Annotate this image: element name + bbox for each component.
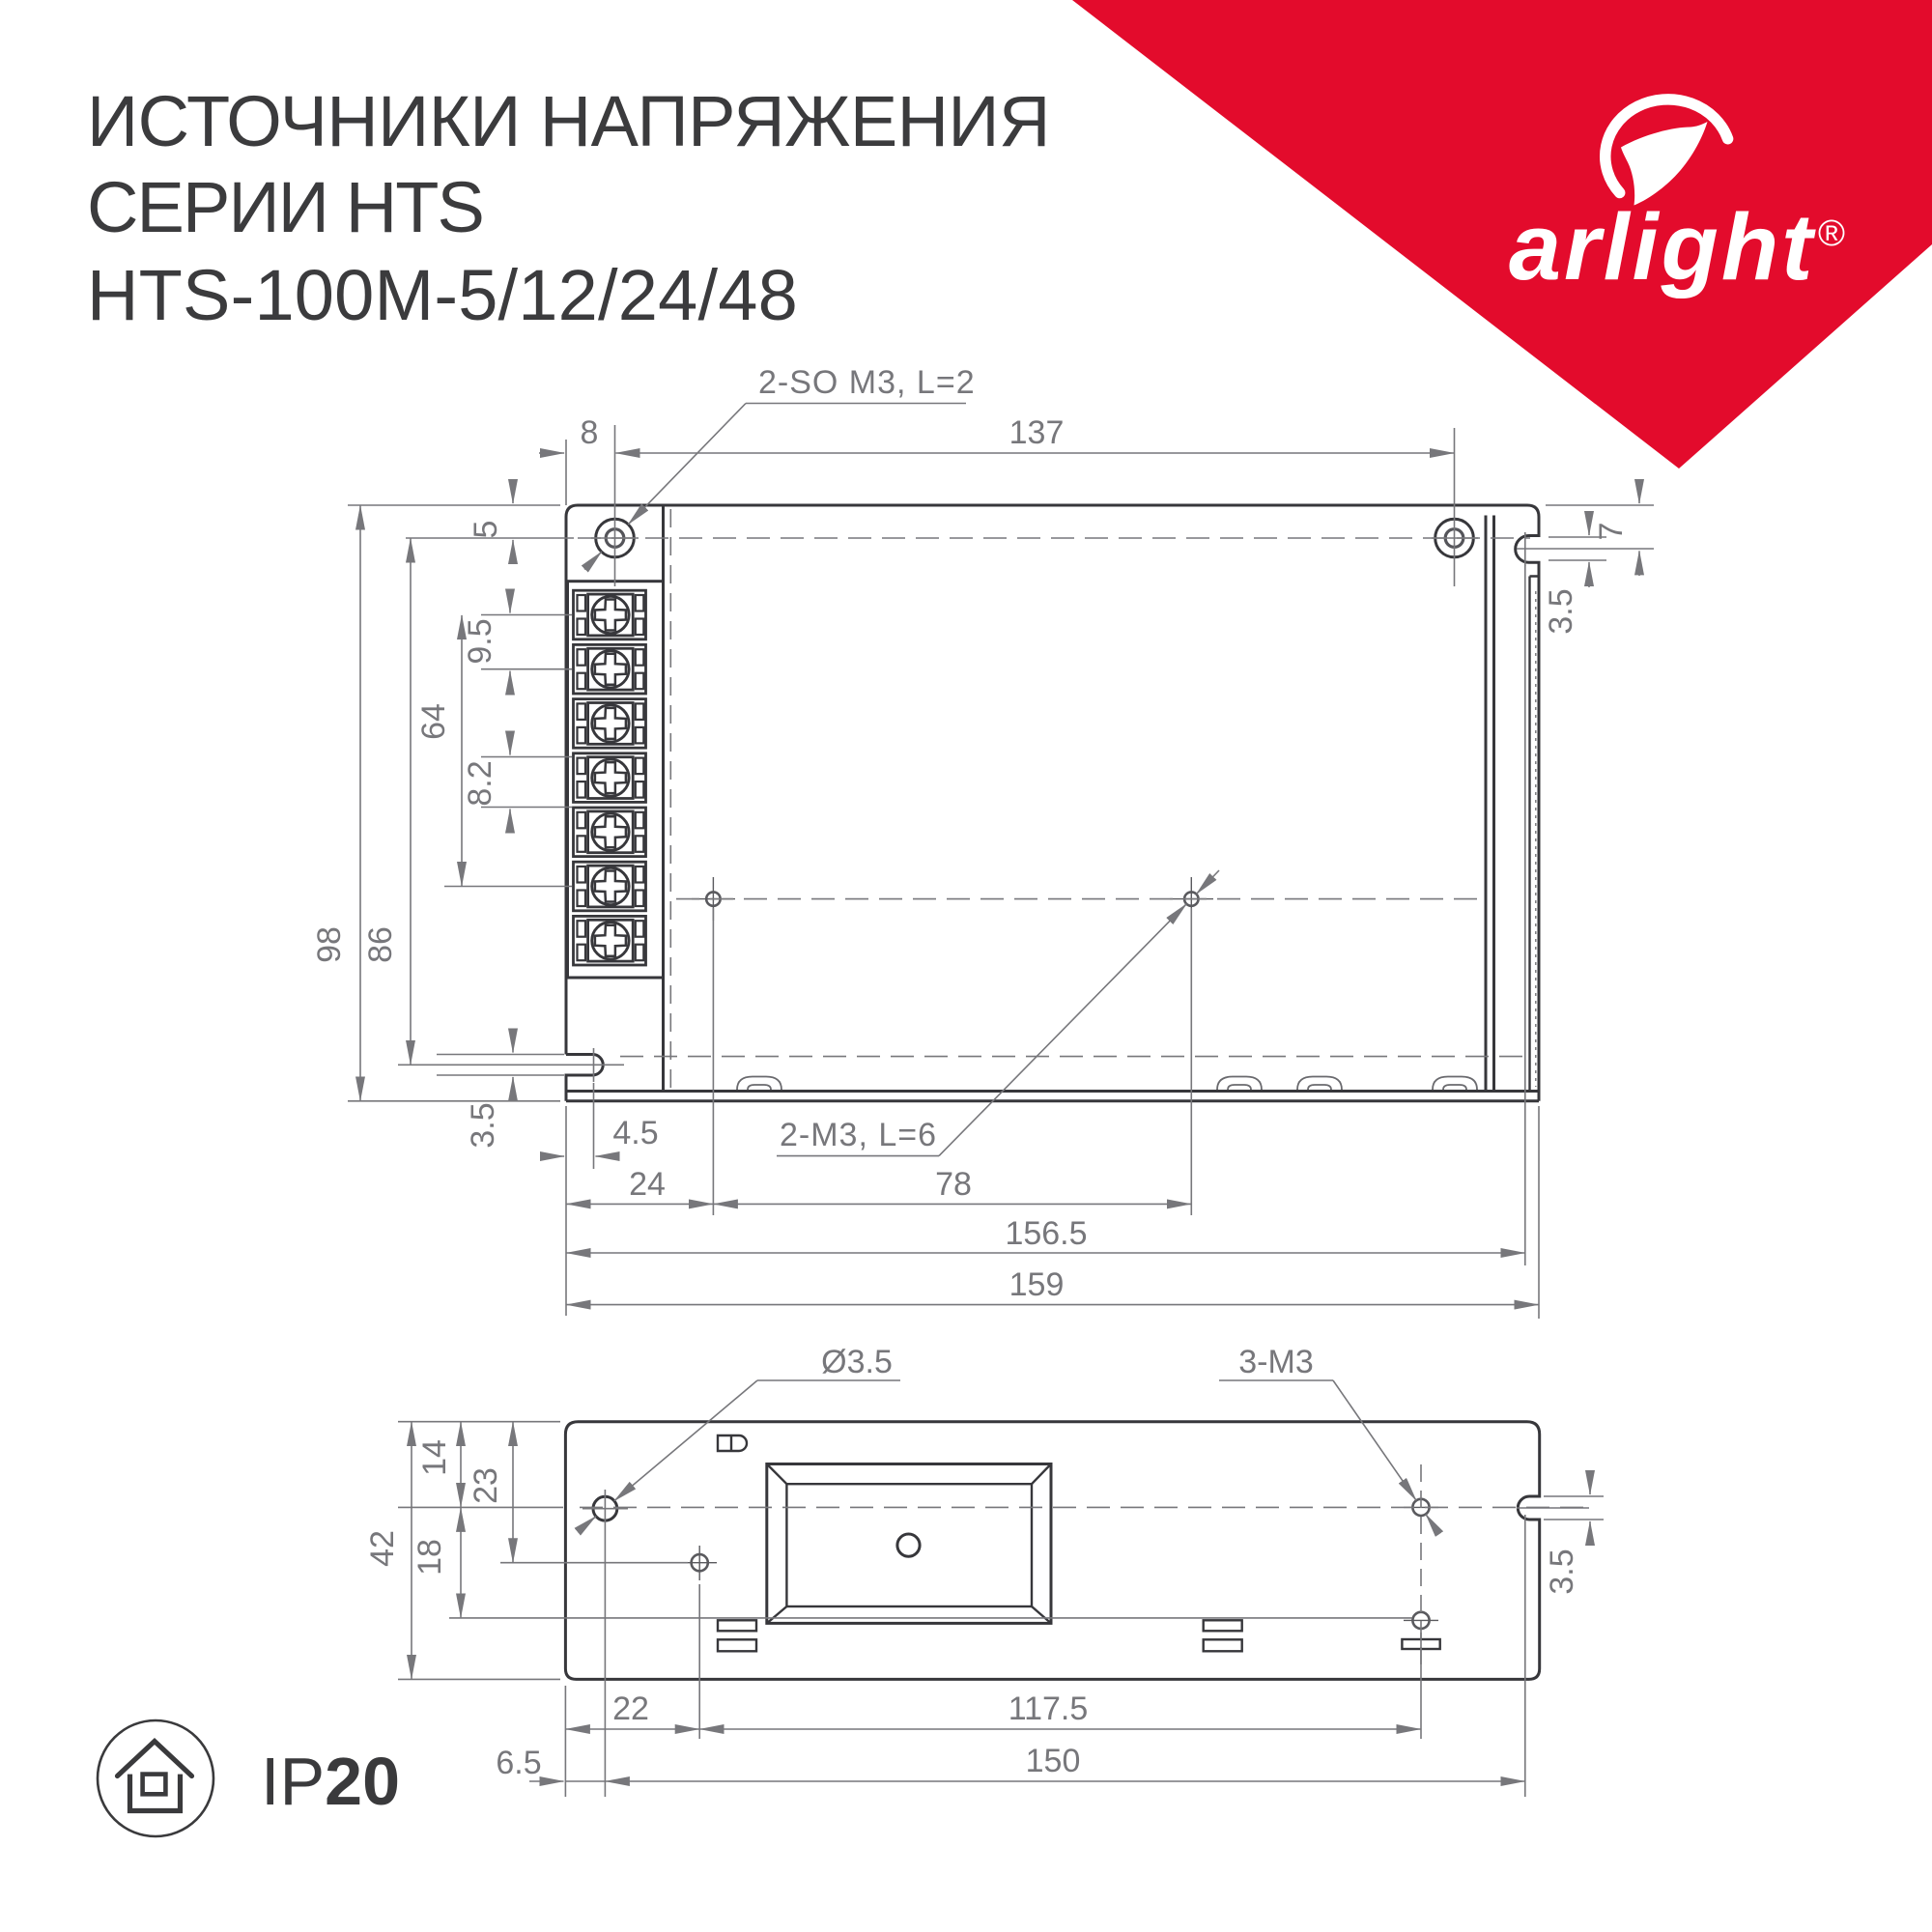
svg-text:64: 64 (415, 703, 452, 740)
svg-text:Ø3.5: Ø3.5 (821, 1344, 893, 1380)
svg-text:3-M3: 3-M3 (1238, 1344, 1313, 1380)
svg-text:4.5: 4.5 (612, 1115, 658, 1151)
svg-text:22: 22 (612, 1690, 649, 1727)
svg-text:3.5: 3.5 (1544, 1548, 1580, 1594)
svg-text:®: ® (1818, 213, 1845, 254)
svg-text:2-SO M3, L=2: 2-SO M3, L=2 (758, 364, 976, 401)
svg-text:3.5: 3.5 (465, 1102, 501, 1148)
svg-text:23: 23 (468, 1467, 504, 1504)
svg-text:5: 5 (468, 521, 504, 539)
svg-text:159: 159 (1009, 1266, 1065, 1303)
svg-text:98: 98 (311, 926, 348, 963)
svg-text:18: 18 (412, 1539, 448, 1576)
svg-text:7: 7 (1593, 523, 1630, 541)
svg-text:СЕРИИ HTS: СЕРИИ HTS (87, 167, 483, 247)
svg-text:arlight: arlight (1509, 194, 1816, 299)
svg-text:78: 78 (935, 1166, 972, 1203)
svg-text:9.5: 9.5 (462, 618, 498, 664)
svg-text:ИСТОЧНИКИ НАПРЯЖЕНИЯ: ИСТОЧНИКИ НАПРЯЖЕНИЯ (87, 81, 1050, 161)
svg-text:156.5: 156.5 (1005, 1215, 1087, 1252)
svg-text:137: 137 (1009, 414, 1065, 451)
svg-text:150: 150 (1026, 1743, 1081, 1779)
svg-text:117.5: 117.5 (1009, 1690, 1089, 1727)
svg-text:14: 14 (416, 1439, 453, 1476)
svg-text:IP20: IP20 (261, 1744, 400, 1819)
svg-text:8: 8 (581, 414, 599, 451)
svg-text:42: 42 (364, 1530, 401, 1567)
svg-text:6.5: 6.5 (496, 1745, 541, 1781)
svg-text:86: 86 (362, 926, 399, 963)
svg-text:3.5: 3.5 (1543, 588, 1579, 634)
svg-text:2-M3, L=6: 2-M3, L=6 (780, 1117, 937, 1153)
svg-text:8.2: 8.2 (462, 760, 498, 806)
svg-text:24: 24 (629, 1166, 666, 1203)
svg-text:HTS-100M-5/12/24/48: HTS-100M-5/12/24/48 (87, 255, 798, 335)
